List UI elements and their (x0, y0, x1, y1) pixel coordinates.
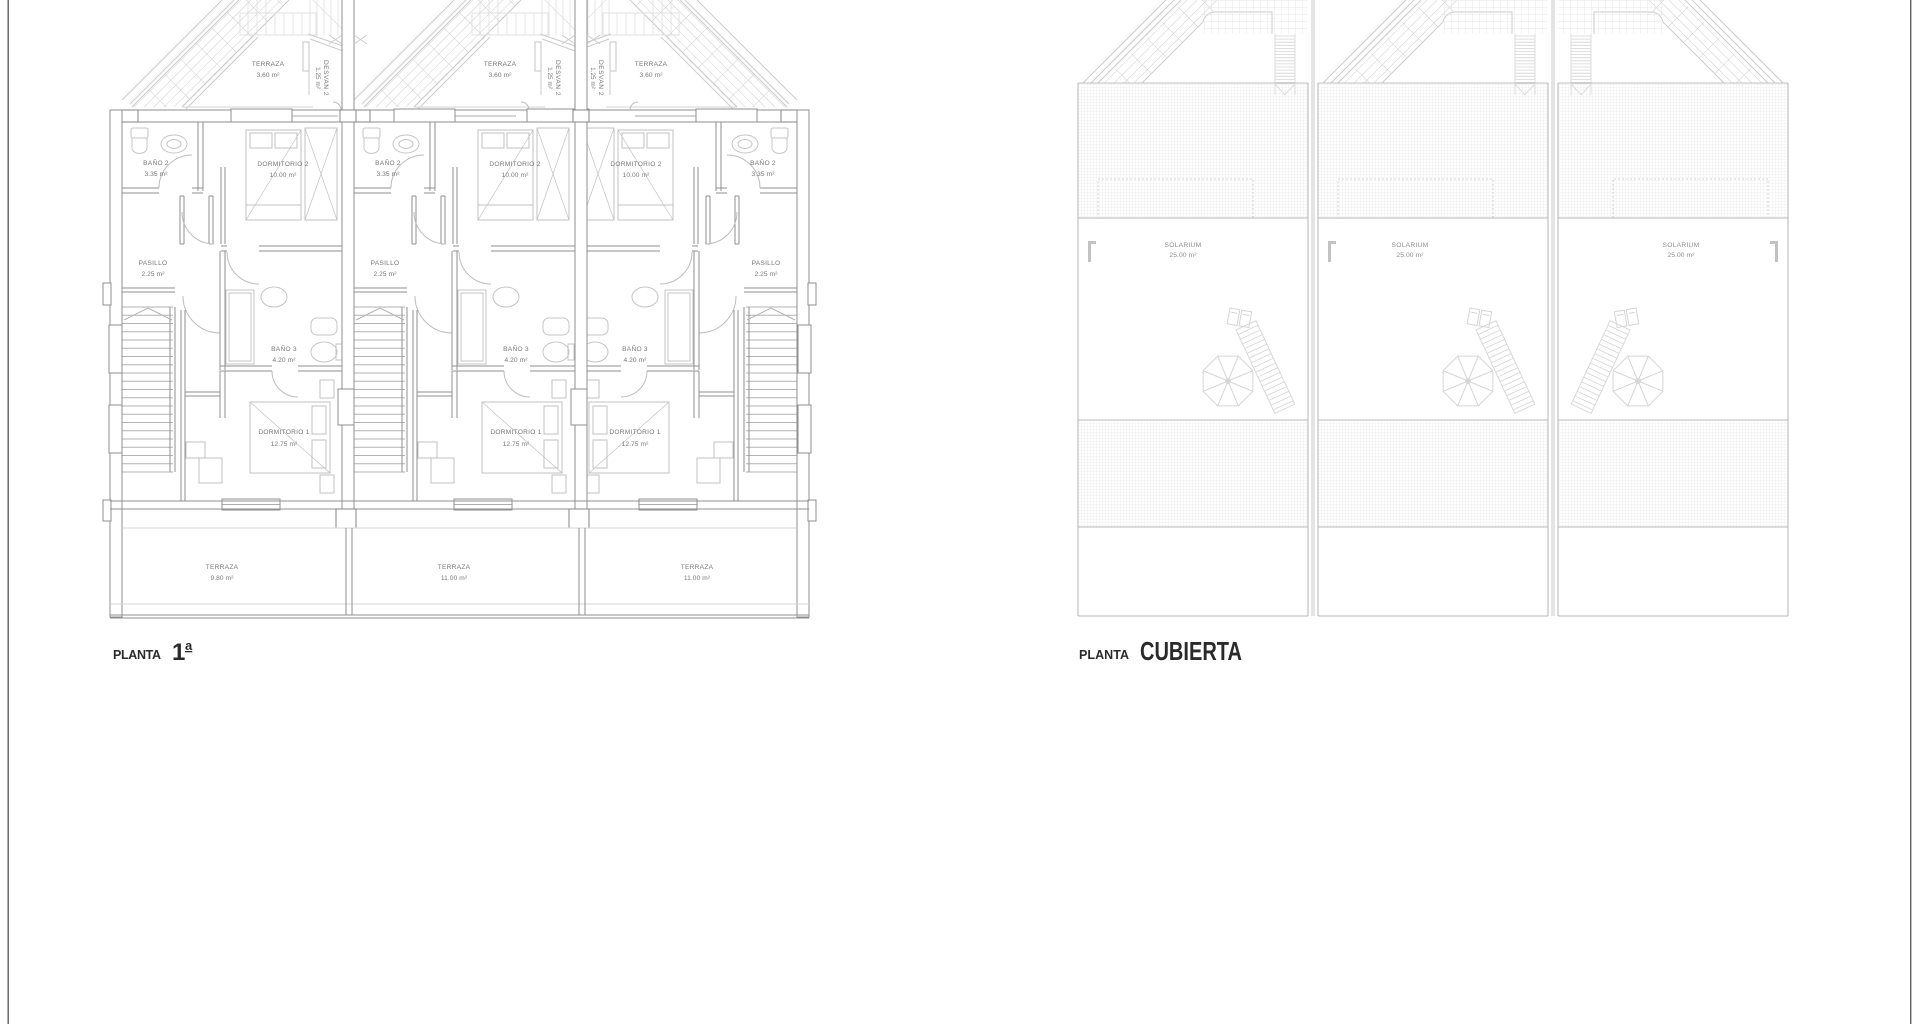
svg-text:3.35 m²: 3.35 m² (376, 171, 400, 178)
svg-text:PLANTA: PLANTA (113, 648, 161, 662)
svg-text:TERRAZA: TERRAZA (438, 564, 471, 571)
svg-text:2.25 m²: 2.25 m² (141, 271, 165, 278)
svg-text:BAÑO 2: BAÑO 2 (143, 158, 169, 167)
svg-text:DESVAN 2: DESVAN 2 (597, 60, 604, 96)
svg-text:12.75 m²: 12.75 m² (622, 441, 650, 448)
svg-text:4.20 m²: 4.20 m² (272, 357, 296, 364)
svg-text:4.20 m²: 4.20 m² (623, 357, 647, 364)
svg-text:3.35 m²: 3.35 m² (144, 171, 168, 178)
svg-text:TERRAZA: TERRAZA (681, 564, 714, 571)
svg-text:1.25 m²: 1.25 m² (314, 67, 321, 89)
svg-text:BAÑO 3: BAÑO 3 (622, 344, 648, 353)
svg-text:1.25 m²: 1.25 m² (546, 67, 553, 89)
svg-text:11.00 m²: 11.00 m² (441, 575, 468, 582)
svg-text:BAÑO 3: BAÑO 3 (503, 344, 529, 353)
svg-text:1.25 m²: 1.25 m² (589, 67, 596, 89)
svg-text:SOLARIUM: SOLARIUM (1392, 242, 1429, 249)
svg-text:3.60 m²: 3.60 m² (639, 72, 663, 79)
svg-text:a: a (185, 638, 193, 653)
svg-text:PASILLO: PASILLO (371, 260, 400, 267)
svg-text:DESVAN 2: DESVAN 2 (554, 60, 561, 96)
svg-text:PASILLO: PASILLO (139, 260, 168, 267)
svg-text:25.00 m²: 25.00 m² (1667, 252, 1695, 259)
svg-text:TERRAZA: TERRAZA (252, 61, 285, 68)
svg-text:12.75 m²: 12.75 m² (271, 441, 299, 448)
svg-text:3.60 m²: 3.60 m² (488, 72, 512, 79)
svg-text:PLANTA: PLANTA (1079, 648, 1129, 662)
svg-text:PASILLO: PASILLO (752, 260, 781, 267)
svg-text:12.75 m²: 12.75 m² (503, 441, 531, 448)
svg-text:4.20 m²: 4.20 m² (504, 357, 528, 364)
svg-text:10.00 m²: 10.00 m² (270, 172, 298, 179)
svg-text:DORMITORIO 1: DORMITORIO 1 (490, 429, 541, 436)
svg-text:2.25 m²: 2.25 m² (373, 271, 397, 278)
svg-text:1: 1 (172, 639, 185, 666)
svg-text:TERRAZA: TERRAZA (484, 61, 517, 68)
svg-text:DORMITORIO 1: DORMITORIO 1 (258, 429, 309, 436)
svg-text:3.60 m²: 3.60 m² (256, 72, 280, 79)
svg-text:25.00 m²: 25.00 m² (1396, 252, 1424, 259)
svg-text:2.25 m²: 2.25 m² (754, 271, 778, 278)
svg-text:SOLARIUM: SOLARIUM (1165, 242, 1202, 249)
svg-text:3.35 m²: 3.35 m² (751, 171, 775, 178)
svg-text:SOLARIUM: SOLARIUM (1663, 242, 1700, 249)
svg-text:BAÑO 3: BAÑO 3 (271, 344, 297, 353)
svg-text:DESVAN 2: DESVAN 2 (322, 60, 329, 96)
svg-text:10.00 m²: 10.00 m² (623, 172, 651, 179)
svg-text:DORMITORIO 2: DORMITORIO 2 (257, 161, 308, 168)
svg-text:BAÑO 2: BAÑO 2 (750, 158, 776, 167)
svg-text:TERRAZA: TERRAZA (206, 564, 239, 571)
svg-text:10.00 m²: 10.00 m² (502, 172, 530, 179)
svg-text:DORMITORIO 2: DORMITORIO 2 (489, 161, 540, 168)
svg-text:11.00 m²: 11.00 m² (684, 575, 711, 582)
svg-text:DORMITORIO 1: DORMITORIO 1 (609, 429, 660, 436)
svg-text:25.00 m²: 25.00 m² (1169, 252, 1197, 259)
svg-text:9.80 m²: 9.80 m² (210, 575, 234, 582)
svg-text:CUBIERTA: CUBIERTA (1140, 636, 1242, 666)
svg-text:BAÑO 2: BAÑO 2 (375, 158, 401, 167)
svg-text:TERRAZA: TERRAZA (635, 61, 668, 68)
svg-text:DORMITORIO 2: DORMITORIO 2 (610, 161, 661, 168)
